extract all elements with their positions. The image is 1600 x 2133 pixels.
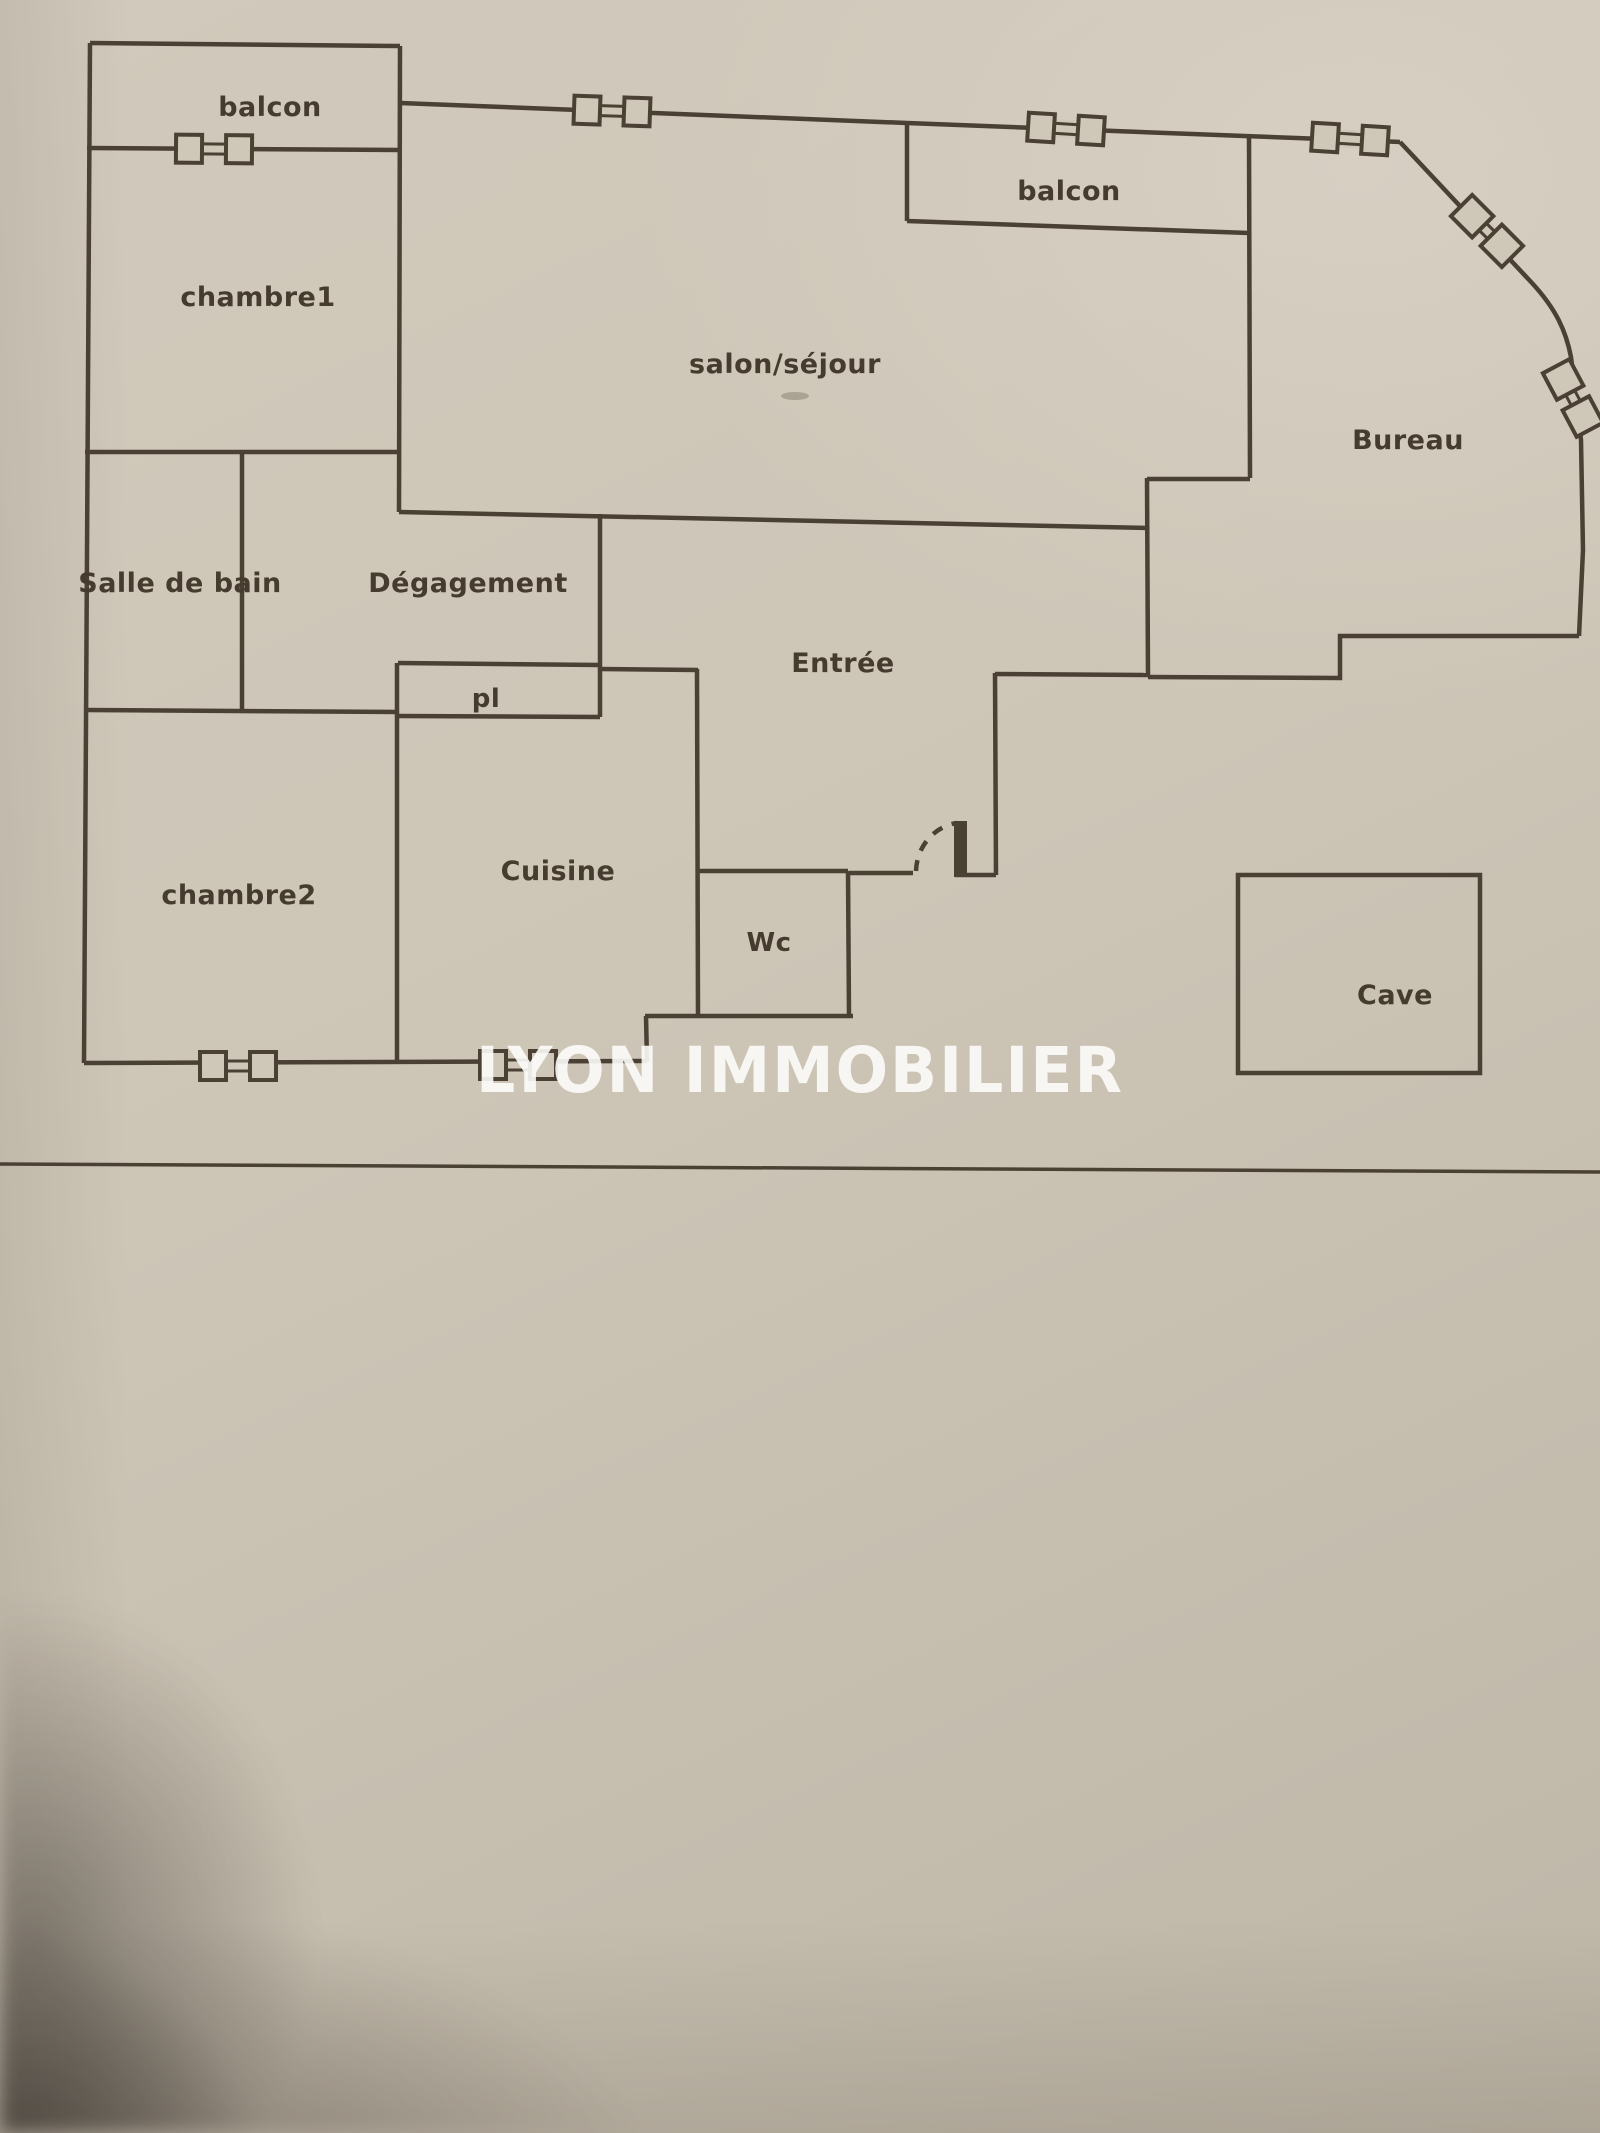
walls <box>84 43 1583 1073</box>
room-label-bureau: Bureau <box>1352 425 1464 456</box>
window-icon <box>200 1052 276 1080</box>
wall-balcony2-bottom <box>907 221 1249 233</box>
room-label-pl: pl <box>472 684 501 714</box>
photographed-floor-plan: { "rooms": { "balcon1": "balcon", "chamb… <box>0 0 1600 2133</box>
entry-door <box>916 821 967 877</box>
wall-bureau-bottom <box>1148 636 1579 678</box>
room-label-chambre1: chambre1 <box>180 282 335 313</box>
wall-cave-outline <box>1238 875 1480 1073</box>
room-label-balcon1: balcon <box>218 92 322 123</box>
door-leaf-icon <box>954 821 967 877</box>
room-label-salon: salon/séjour <box>689 349 881 380</box>
agency-watermark: LYON IMMOBILIER <box>476 1034 1124 1107</box>
window-icon <box>176 135 252 164</box>
wall-balcony1-top <box>90 43 400 46</box>
door-swing-arc-icon <box>916 823 957 871</box>
wall-wc-right <box>848 871 849 1016</box>
room-label-cuisine: Cuisine <box>501 856 616 887</box>
page-separator-line <box>0 1164 1600 1172</box>
wall-salon-top <box>400 103 907 123</box>
wall-entree-bottom <box>995 674 1148 675</box>
wall-balcony2-right <box>1249 135 1250 478</box>
floor-plan-svg: balcon chambre1 salon/séjour balcon Bure… <box>0 0 1600 2133</box>
wall-entree-right-upper <box>1147 478 1148 677</box>
wall-entree-right-lower <box>995 673 996 875</box>
wall-pl-top <box>398 663 600 665</box>
room-label-degagement: Dégagement <box>368 568 567 599</box>
window-icon <box>1543 359 1600 437</box>
scan-smudge <box>781 392 809 400</box>
wall-cuisine-top-right <box>600 669 698 670</box>
room-label-cave: Cave <box>1357 980 1433 1011</box>
room-label-salle-de-bain: Salle de bain <box>78 568 281 599</box>
window-icon <box>1451 195 1523 267</box>
window-icon <box>1027 113 1105 146</box>
room-label-entree: Entrée <box>791 648 895 679</box>
wall-salon-bottom <box>399 512 1147 528</box>
window-icon <box>574 96 651 127</box>
room-label-balcon2: balcon <box>1017 176 1121 207</box>
wall-outer-left <box>84 43 90 1063</box>
wall-pl-bottom <box>398 716 600 717</box>
wall-sdb-bottom <box>84 710 397 712</box>
window-icon <box>1311 123 1389 156</box>
wall-cuisine-right <box>697 669 698 1016</box>
wall-chambre1-right <box>399 46 400 512</box>
room-label-chambre2: chambre2 <box>161 880 316 911</box>
room-label-wc: Wc <box>746 928 791 958</box>
